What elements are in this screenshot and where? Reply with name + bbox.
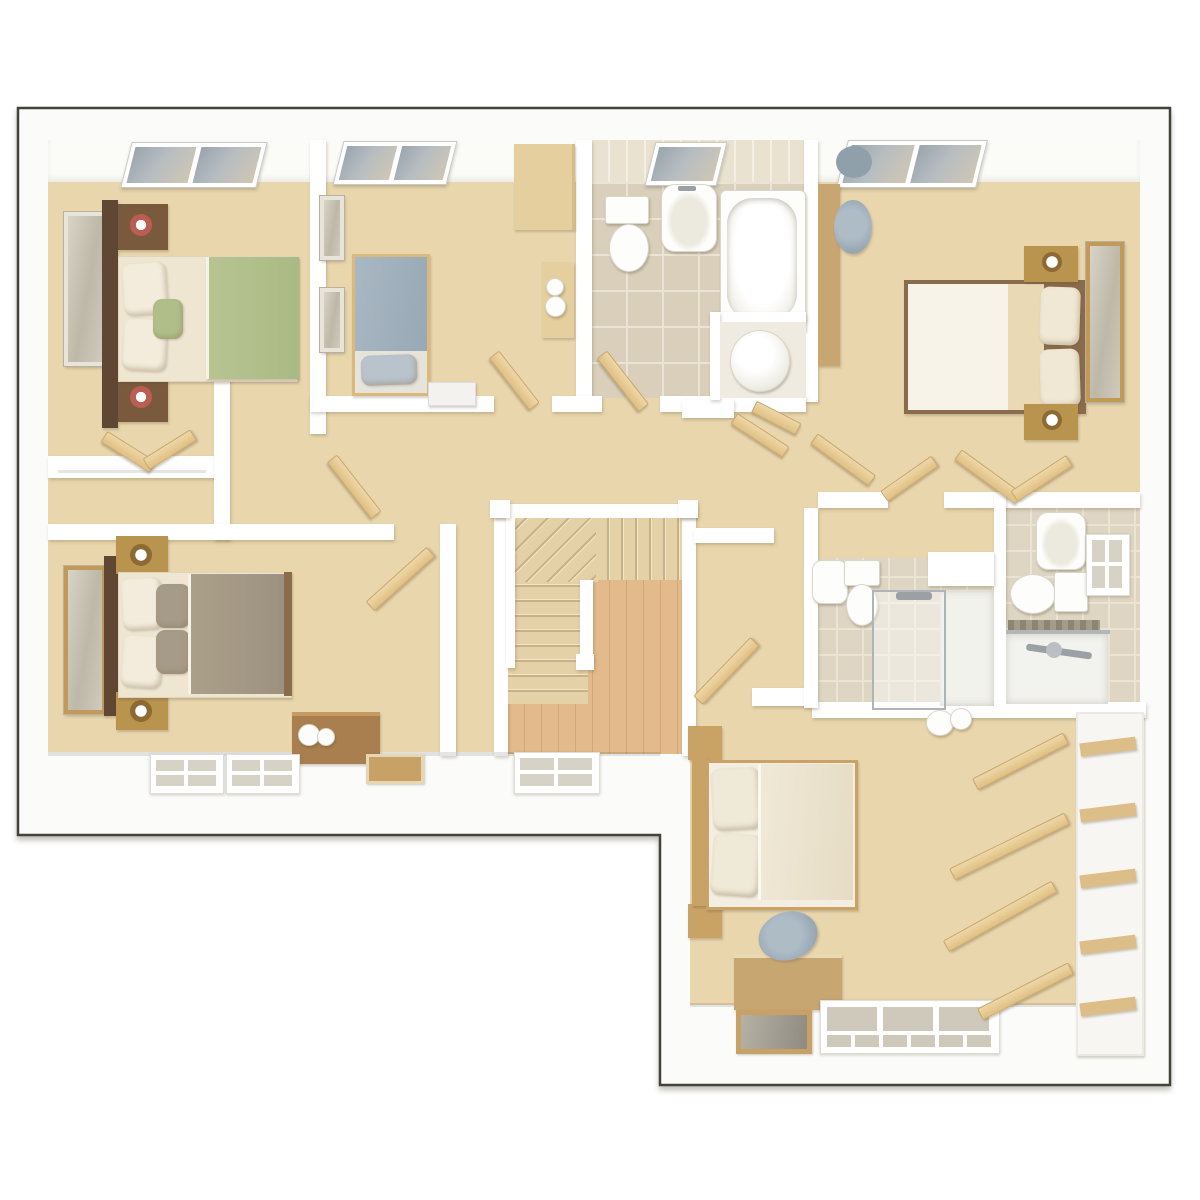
bathtub-inner <box>727 198 797 320</box>
ensuite1-shower-glass <box>872 590 946 710</box>
bedroom2-drawer-unit <box>428 382 476 406</box>
bedroom1-green-duvet <box>206 257 299 379</box>
bedroom5-headboard <box>692 758 706 906</box>
bedroom3-mirror <box>1086 242 1124 402</box>
ensuite1-shower-tray <box>940 590 994 706</box>
wall-bath-bed3 <box>804 140 818 402</box>
stair-newel-post-mid <box>576 654 594 670</box>
bedroom2-picture-2 <box>320 288 344 352</box>
bedroom1-lamp-top-icon <box>130 214 152 236</box>
airing-cupboard-wall-left <box>710 312 720 400</box>
bedroom4-window-1 <box>150 754 224 794</box>
ensuite2-window <box>1086 534 1130 596</box>
ensuite1-half-wall <box>928 552 994 586</box>
stair-winder-treads <box>508 518 598 582</box>
wall-bed1-bed2 <box>310 140 326 434</box>
wall-vestibule-stub <box>682 400 734 418</box>
basin-tap-icon <box>678 186 696 191</box>
ensuite2-toilet-bowl <box>1010 574 1056 614</box>
ensuite1-basin <box>812 560 848 604</box>
stair-banister-mid <box>580 580 593 662</box>
ensuite1-toilet-cistern <box>844 560 880 586</box>
airing-cupboard-wall-top <box>710 312 806 322</box>
stairwell-window <box>514 752 600 794</box>
wall-bed2-bath <box>576 140 592 398</box>
bedroom2-pillow <box>360 354 417 386</box>
stair-newel-post-right <box>678 500 698 518</box>
floorplan-stage <box>0 0 1200 1200</box>
wall-hall-lobby <box>804 508 818 708</box>
bedroom1-mirror <box>64 212 106 366</box>
bedroom4-window-2 <box>226 754 300 794</box>
ensuite2-mixer-knob-icon <box>1046 642 1062 658</box>
wall-closet-east <box>214 376 230 540</box>
stair-handrail-top <box>494 504 696 518</box>
bedroom3-pillow-2 <box>1039 348 1081 407</box>
ensuite2-toilet-cistern <box>1054 572 1088 612</box>
wall-corridor-stub <box>694 528 774 543</box>
bedroom3-mattress <box>908 284 1008 410</box>
bathroom-basin <box>661 184 717 252</box>
stair-banister-left <box>506 518 515 668</box>
bedroom5-duvet <box>758 764 853 900</box>
bedroom3-lamp-bottom-icon <box>1042 410 1062 430</box>
skylight-bedroom2-icon <box>333 141 458 185</box>
basket-2 <box>950 708 972 730</box>
ensuite1-shower-head-icon <box>896 592 932 600</box>
stair-newel-post-left <box>490 500 510 518</box>
wall-bed4-north <box>48 524 394 540</box>
bedroom3-cream-fold <box>1008 284 1044 410</box>
bedroom5-nightstand-top <box>688 726 722 760</box>
toilet-bowl-bathroom <box>609 224 649 272</box>
bedroom3-chair-back <box>836 146 872 178</box>
skylight-bathroom-icon <box>645 142 728 186</box>
bedroom3-desk-chair <box>834 200 872 254</box>
bedroom3-pillow-1 <box>1039 286 1081 345</box>
wall-bed3-south-a <box>818 492 888 508</box>
bedroom5-pillow-2 <box>710 832 762 897</box>
hot-water-cylinder <box>730 330 790 392</box>
bedroom4-floor-frame <box>366 754 424 784</box>
bedroom4-footboard <box>284 572 292 696</box>
bedroom4-mirror <box>64 566 106 714</box>
bedroom2-picture-1 <box>320 196 344 260</box>
bedroom2-vase-1 <box>546 278 564 296</box>
bedroom1-headboard <box>102 200 118 428</box>
skylight-bedroom1-icon <box>120 142 267 188</box>
stair-lower-flight <box>508 582 588 704</box>
closet-rail <box>58 470 206 473</box>
bedroom3-lamp-top-icon <box>1042 252 1062 272</box>
bedroom4-sphere-2 <box>317 728 335 746</box>
bedroom1-green-cushion <box>153 299 183 339</box>
bedroom4-grey-cushion-1 <box>156 584 190 628</box>
wall-ensuite-divider <box>994 492 1006 714</box>
bedroom2-vase-2 <box>545 296 566 317</box>
bedroom2-blue-duvet <box>355 257 427 351</box>
bedroom5-window <box>820 1000 1000 1054</box>
bedroom5-pillow-1 <box>710 767 761 831</box>
bedroom2-wardrobe <box>514 144 575 230</box>
bedroom1-lamp-bottom-icon <box>130 386 152 408</box>
wall-bed4-east <box>440 524 456 756</box>
wall-bed3-south-b <box>944 492 1140 508</box>
stair-upper-flight <box>596 518 682 580</box>
bedroom4-lamp-top-icon <box>130 544 152 566</box>
toilet-cistern-bathroom <box>605 196 649 224</box>
wall-landing-north-b <box>552 396 602 412</box>
bedroom4-taupe-duvet <box>188 574 287 694</box>
bedroom5-floor-frame <box>736 1010 812 1054</box>
bedroom4-grey-cushion-2 <box>156 630 190 674</box>
ensuite2-basin <box>1036 512 1086 570</box>
bedroom4-lamp-bottom-icon <box>130 700 152 722</box>
